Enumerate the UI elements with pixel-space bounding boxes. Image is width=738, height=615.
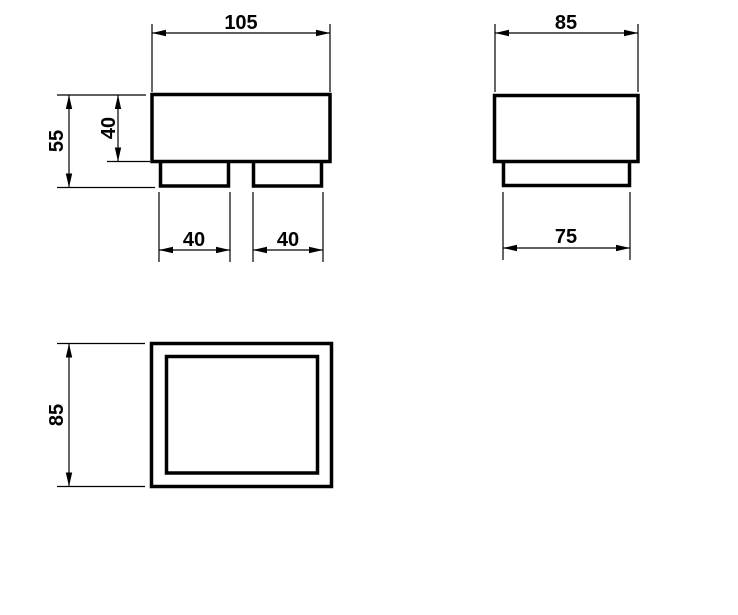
dim-label-front-total-height: 55 — [46, 130, 68, 152]
arrowhead-left — [495, 30, 509, 36]
side-base-outline — [504, 162, 630, 186]
dim-front-right-foot-width: 40 — [253, 192, 323, 262]
arrowhead-up — [115, 95, 121, 109]
side-body-outline — [495, 96, 639, 162]
arrowhead-up — [66, 95, 72, 109]
dim-label-side-width: 85 — [555, 12, 577, 34]
arrowhead-down — [66, 473, 72, 487]
side-view: 85 75 — [495, 12, 639, 260]
dim-front-total-height: 55 — [46, 95, 155, 188]
arrowhead-up — [66, 344, 72, 358]
dim-label-plan-depth: 85 — [46, 404, 68, 426]
front-body-outline — [152, 95, 330, 162]
dim-side-width: 85 — [495, 12, 638, 92]
dim-label-front-left-foot: 40 — [183, 229, 205, 251]
front-view: 105 55 40 — [46, 12, 330, 262]
technical-drawing: 105 55 40 — [0, 0, 738, 615]
plan-outer-outline — [152, 344, 332, 487]
dim-front-width: 105 — [152, 12, 330, 92]
dim-front-left-foot-width: 40 — [159, 192, 230, 262]
arrowhead-down — [115, 148, 121, 162]
dim-label-side-base-width: 75 — [555, 226, 577, 248]
plan-inner-outline — [167, 357, 318, 474]
dim-plan-depth: 85 — [46, 344, 145, 487]
dim-side-base-width: 75 — [503, 192, 630, 260]
arrowhead-right — [624, 30, 638, 36]
dim-label-front-right-foot: 40 — [277, 229, 299, 251]
dim-front-body-height: 40 — [98, 95, 150, 162]
arrowhead-right — [616, 245, 630, 251]
drawing-canvas: 105 55 40 — [0, 0, 738, 615]
front-left-foot-outline — [161, 161, 229, 186]
arrowhead-down — [66, 174, 72, 188]
arrowhead-right — [216, 247, 230, 253]
dim-label-front-width: 105 — [224, 12, 257, 34]
dim-label-front-body-height: 40 — [98, 117, 120, 139]
arrowhead-left — [159, 247, 173, 253]
arrowhead-right — [316, 30, 330, 36]
arrowhead-left — [503, 245, 517, 251]
arrowhead-left — [253, 247, 267, 253]
arrowhead-left — [152, 30, 166, 36]
front-right-foot-outline — [254, 161, 322, 186]
arrowhead-right — [309, 247, 323, 253]
plan-view: 85 — [46, 344, 332, 487]
